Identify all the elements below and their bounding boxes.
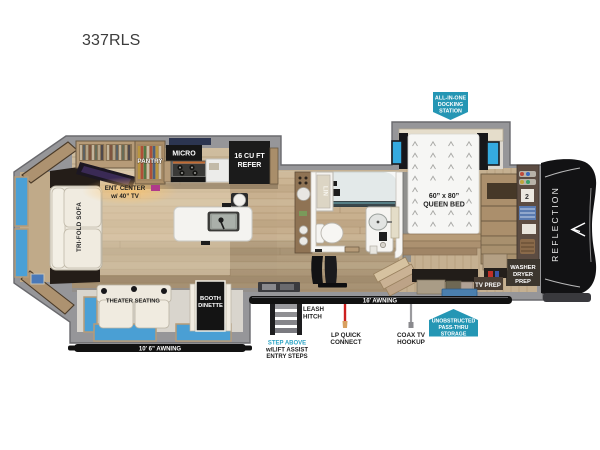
svg-text:THEATER SEATING: THEATER SEATING — [106, 299, 160, 305]
svg-text:HITCH: HITCH — [303, 314, 322, 321]
svg-text:PANTRY: PANTRY — [137, 158, 163, 165]
svg-text:ENTRY STEPS: ENTRY STEPS — [266, 354, 307, 360]
svg-text:WASHER: WASHER — [510, 265, 536, 271]
svg-text:PASS-THRU: PASS-THRU — [439, 325, 469, 331]
svg-text:w/ 40” TV: w/ 40” TV — [110, 193, 140, 200]
svg-text:REFER: REFER — [238, 162, 262, 169]
svg-text:LP QUICK: LP QUICK — [331, 332, 361, 339]
svg-text:2: 2 — [525, 194, 529, 201]
svg-text:STATION: STATION — [439, 109, 462, 115]
svg-text:CONNECT: CONNECT — [330, 339, 361, 346]
svg-text:w/LIFT ASSIST: w/LIFT ASSIST — [265, 348, 308, 354]
svg-text:QUEEN BED: QUEEN BED — [423, 202, 465, 209]
svg-text:TV PREP: TV PREP — [475, 283, 501, 289]
svg-text:DOCKING: DOCKING — [438, 102, 463, 108]
svg-text:STEP ABOVE: STEP ABOVE — [268, 341, 306, 347]
svg-text:BOOTH: BOOTH — [200, 296, 221, 302]
svg-text:LIN: LIN — [322, 186, 329, 196]
svg-text:UNOBSTRUCTED: UNOBSTRUCTED — [432, 319, 476, 325]
svg-text:COAX TV: COAX TV — [397, 332, 426, 339]
svg-text:PREP: PREP — [515, 279, 531, 285]
svg-text:REFLECTION: REFLECTION — [550, 186, 560, 262]
svg-text:HOOKUP: HOOKUP — [397, 339, 425, 346]
svg-text:TRI-FOLD SOFA: TRI-FOLD SOFA — [76, 202, 83, 252]
svg-text:LEASH: LEASH — [303, 306, 325, 313]
svg-text:DRYER: DRYER — [513, 272, 534, 278]
svg-text:337RLS: 337RLS — [82, 32, 140, 49]
svg-text:16 CU FT: 16 CU FT — [234, 153, 265, 160]
svg-text:ENT. CENTER: ENT. CENTER — [105, 185, 146, 192]
svg-text:16′ AWNING: 16′ AWNING — [363, 299, 398, 305]
svg-text:ALL-IN-ONE: ALL-IN-ONE — [435, 96, 467, 102]
svg-text:MICRO: MICRO — [172, 151, 196, 158]
svg-text:10′ 6” AWNING: 10′ 6” AWNING — [139, 347, 182, 353]
svg-text:60” x 80”: 60” x 80” — [429, 193, 459, 200]
svg-text:STORAGE: STORAGE — [441, 332, 467, 338]
svg-text:DINETTE: DINETTE — [198, 303, 223, 309]
